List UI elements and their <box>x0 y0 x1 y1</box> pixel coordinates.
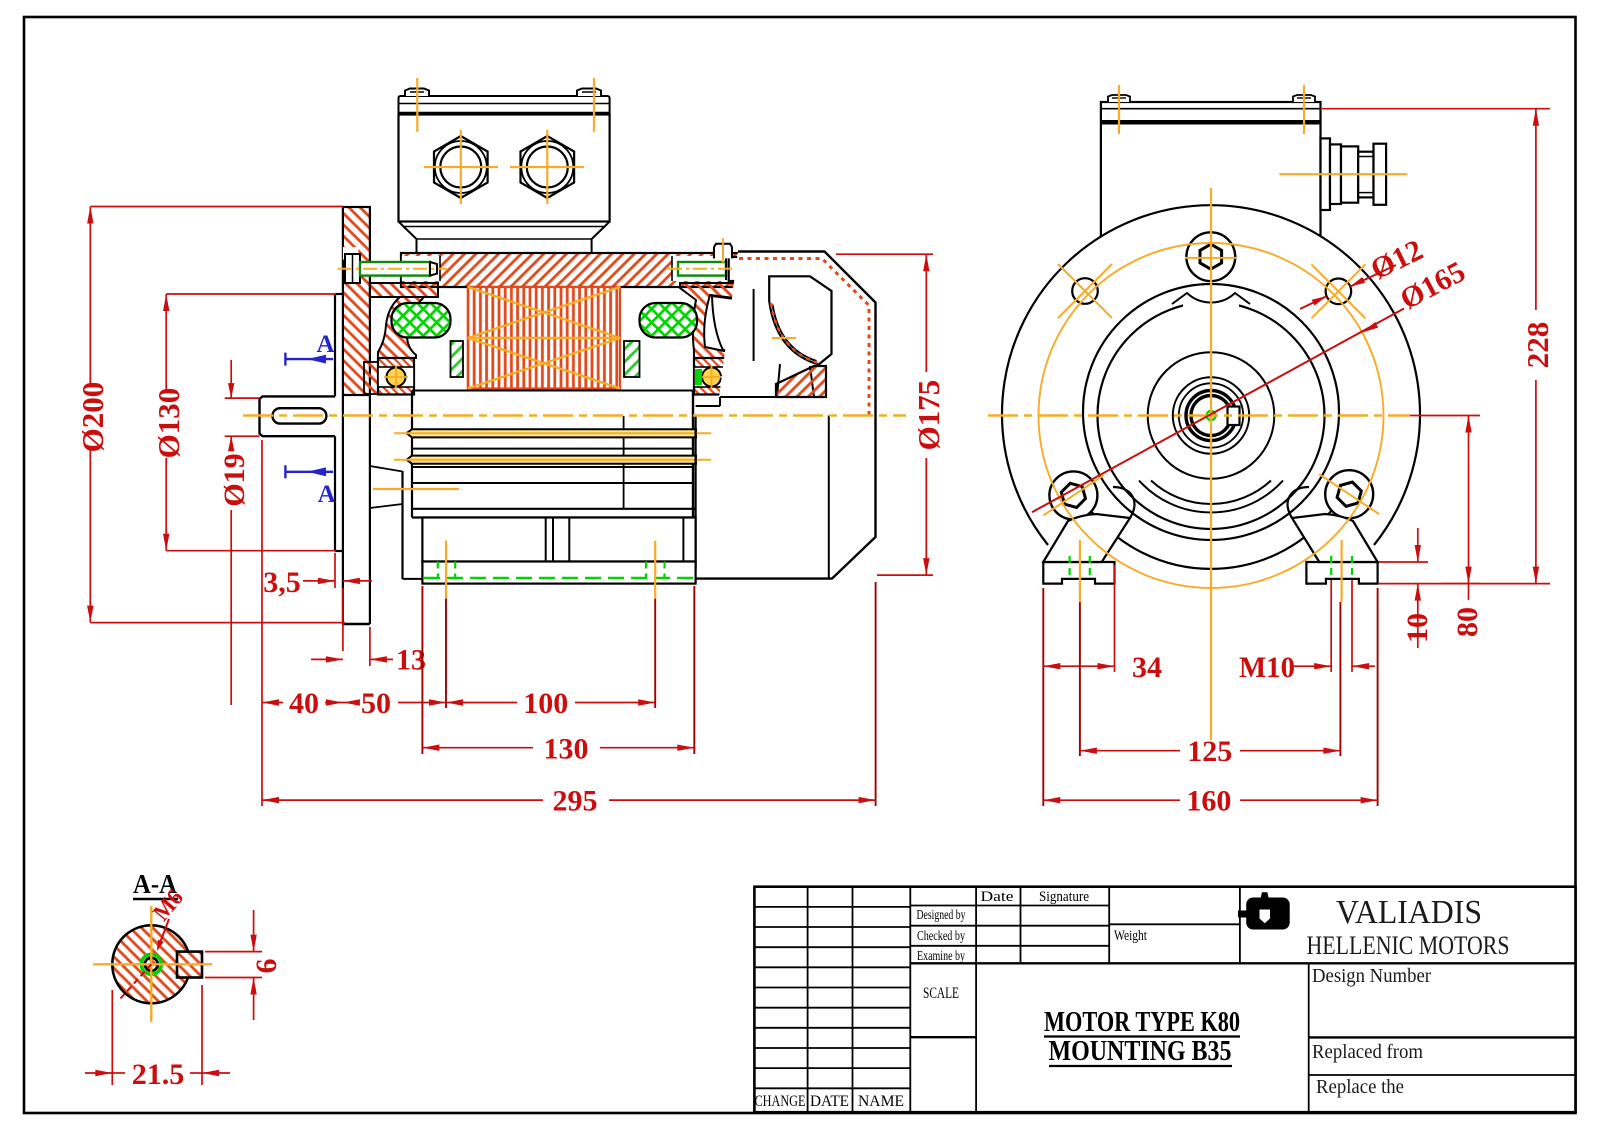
svg-text:Ø200: Ø200 <box>75 382 110 453</box>
svg-text:Examine by: Examine by <box>917 949 965 964</box>
svg-text:40: 40 <box>289 687 319 720</box>
svg-text:125: 125 <box>1187 735 1232 768</box>
svg-text:228: 228 <box>1520 322 1555 369</box>
svg-text:100: 100 <box>523 687 568 720</box>
svg-text:21.5: 21.5 <box>132 1058 185 1091</box>
svg-text:M10: M10 <box>1239 651 1295 684</box>
svg-text:130: 130 <box>544 733 589 766</box>
svg-text:MOTOR TYPE K80: MOTOR TYPE K80 <box>1044 1006 1240 1038</box>
svg-text:160: 160 <box>1186 785 1231 818</box>
svg-text:Replaced from: Replaced from <box>1312 1041 1423 1063</box>
svg-text:Date: Date <box>981 889 1014 905</box>
svg-text:CHANGE: CHANGE <box>755 1093 806 1110</box>
svg-text:10: 10 <box>1401 613 1434 643</box>
svg-text:Design Number: Design Number <box>1312 965 1431 987</box>
svg-text:Weight: Weight <box>1114 928 1147 944</box>
svg-text:50: 50 <box>361 687 391 720</box>
svg-text:Ø19: Ø19 <box>218 453 251 506</box>
svg-text:DATE: DATE <box>810 1093 849 1110</box>
svg-text:A: A <box>316 331 334 358</box>
svg-text:Ø175: Ø175 <box>911 380 946 451</box>
svg-text:HELLENIC MOTORS: HELLENIC MOTORS <box>1307 931 1510 960</box>
svg-text:Replace the: Replace the <box>1316 1076 1404 1098</box>
svg-text:Checked by: Checked by <box>917 929 965 944</box>
svg-text:SCALE: SCALE <box>923 985 959 1002</box>
svg-text:6: 6 <box>250 959 283 974</box>
svg-text:MOUNTING B35: MOUNTING B35 <box>1049 1035 1232 1067</box>
svg-text:3,5: 3,5 <box>263 566 301 599</box>
svg-text:80: 80 <box>1451 607 1484 637</box>
svg-text:NAME: NAME <box>858 1093 904 1110</box>
svg-text:Signature: Signature <box>1039 889 1089 905</box>
svg-text:Ø130: Ø130 <box>151 388 186 459</box>
svg-text:295: 295 <box>553 785 598 818</box>
svg-text:VALIADIS: VALIADIS <box>1336 894 1482 931</box>
svg-text:A: A <box>318 481 336 508</box>
svg-text:34: 34 <box>1132 651 1162 684</box>
svg-text:Designed by: Designed by <box>917 908 966 923</box>
